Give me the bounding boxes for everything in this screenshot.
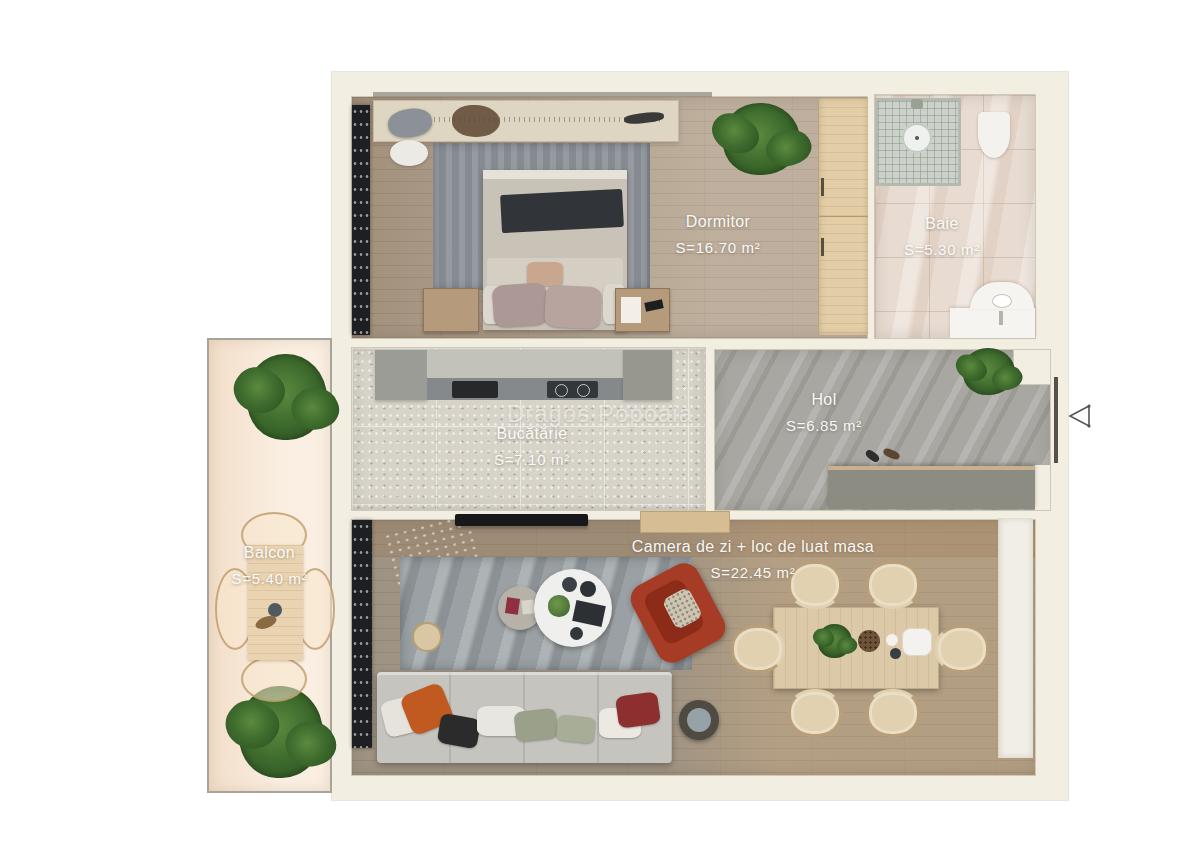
kitchen-sink [452, 381, 498, 398]
bedroom-wardrobe [818, 98, 868, 335]
room-hol: Hol S=6.85 m² [715, 350, 1050, 510]
table-bowl-2 [580, 581, 596, 597]
kitchen-cabinet-left [375, 350, 427, 400]
dresser-branch-decor [452, 105, 500, 137]
hol-name: Hol [744, 391, 904, 409]
dining-centerpiece-plant [818, 624, 852, 658]
shower-drain-dot [915, 136, 919, 140]
entrance-door [1054, 377, 1058, 463]
bed [483, 170, 627, 330]
coffee-table-card [521, 599, 534, 614]
camera-name: Camera de zi + loc de luat masa [583, 538, 923, 556]
room-balcon: Balcon S=5.40 m² [207, 338, 332, 793]
dormitor-label: Dormitor S=16.70 m² [638, 213, 798, 256]
kitchen-cooktop [547, 381, 598, 398]
dining-chair-bottom-1 [788, 689, 842, 737]
balcony-table-leaf [254, 614, 278, 632]
dining-chair-bottom-2 [866, 689, 920, 737]
shoe-2 [882, 447, 901, 461]
cooktop-burner-2 [577, 384, 590, 397]
nightstand-right [615, 288, 670, 332]
bucatarie-area: S=7.10 m² [452, 451, 612, 468]
nightstand-card [621, 297, 641, 323]
side-table-top [687, 708, 711, 732]
coffee-table-large [534, 569, 612, 647]
hall-bench [828, 466, 1035, 509]
table-plant [548, 595, 570, 617]
floorplan: Balcon S=5.40 m² [0, 0, 1200, 849]
bed-dark-throw [500, 189, 624, 233]
balcony-plant-top [247, 354, 327, 440]
baie-area: S=5.30 m² [875, 241, 1009, 258]
dining-table [773, 607, 939, 689]
hall-wall-patch [1035, 465, 1050, 510]
hall-plant [963, 348, 1015, 395]
bed-pillow-2 [544, 285, 602, 330]
living-cabinet-column [998, 518, 1033, 758]
wardrobe-handle-1 [821, 178, 824, 196]
dining-chair-top-1 [788, 561, 842, 609]
dining-chair-right [935, 625, 989, 673]
bed-footboard [483, 170, 627, 179]
nightstand-remote [644, 299, 663, 312]
dining-chair-left [731, 625, 785, 673]
bedroom-stool [390, 140, 428, 166]
toilet [978, 112, 1010, 158]
balcony-table [248, 545, 303, 660]
baie-name: Baie [875, 215, 1009, 233]
table-bowl-1 [562, 577, 577, 592]
sofa-pillow-sage-2 [556, 714, 597, 744]
wardrobe-handle-2 [821, 238, 824, 256]
nightstand-left [423, 288, 479, 332]
shower-head [911, 99, 923, 109]
entrance-arrow-icon [1066, 403, 1094, 429]
side-table [679, 700, 719, 740]
coffee-table-magazine [505, 597, 520, 615]
baie-label: Baie S=5.30 m² [875, 215, 1009, 258]
shoe-1 [864, 448, 881, 464]
hol-label: Hol S=6.85 m² [744, 391, 904, 434]
sofa-pillow-sage-1 [514, 708, 559, 742]
hol-area: S=6.85 m² [744, 417, 904, 434]
dining-plate-small [886, 634, 898, 646]
shower [875, 98, 961, 186]
shower-drain [902, 123, 932, 153]
room-baie: Baie S=5.30 m² [875, 95, 1035, 338]
cooktop-burner-1 [555, 384, 568, 397]
dining-chair-top-2 [866, 561, 920, 609]
kitchen-cabinet-right [623, 350, 672, 400]
tv-sideboard [640, 511, 730, 533]
table-bowl-3 [570, 627, 583, 640]
dining-cup [890, 648, 901, 659]
dormitor-name: Dormitor [638, 213, 798, 231]
dining-pinecone-decor [858, 630, 880, 652]
bed-pillow-1 [492, 282, 549, 328]
tv [455, 514, 588, 526]
table-book [572, 600, 606, 627]
bedroom-curtains [352, 105, 370, 335]
sofa [377, 672, 672, 763]
dining-tray [902, 628, 932, 656]
room-dormitor: Dormitor S=16.70 m² [352, 97, 867, 338]
living-curtains [352, 520, 372, 748]
room-bucatarie: Bucătărie S=7.10 m² [352, 348, 705, 510]
sofa-pillow-black [437, 713, 482, 749]
sink-basin [992, 294, 1012, 308]
wardrobe-divider [819, 216, 868, 217]
bucatarie-name: Bucătărie [452, 425, 612, 443]
basket [412, 622, 442, 652]
kitchen-upper-counter [427, 350, 623, 378]
sink-faucet [999, 311, 1003, 325]
bucatarie-label: Bucătărie S=7.10 m² [452, 425, 612, 468]
balcony-chair-bottom [241, 656, 307, 702]
bedroom-plant [723, 103, 800, 175]
sink-vanity [950, 308, 1035, 338]
sofa-pillow-darkred [615, 691, 661, 729]
room-camera-de-zi: Camera de zi + loc de luat masa S=22.45 … [352, 520, 1035, 775]
dormitor-area: S=16.70 m² [638, 239, 798, 256]
